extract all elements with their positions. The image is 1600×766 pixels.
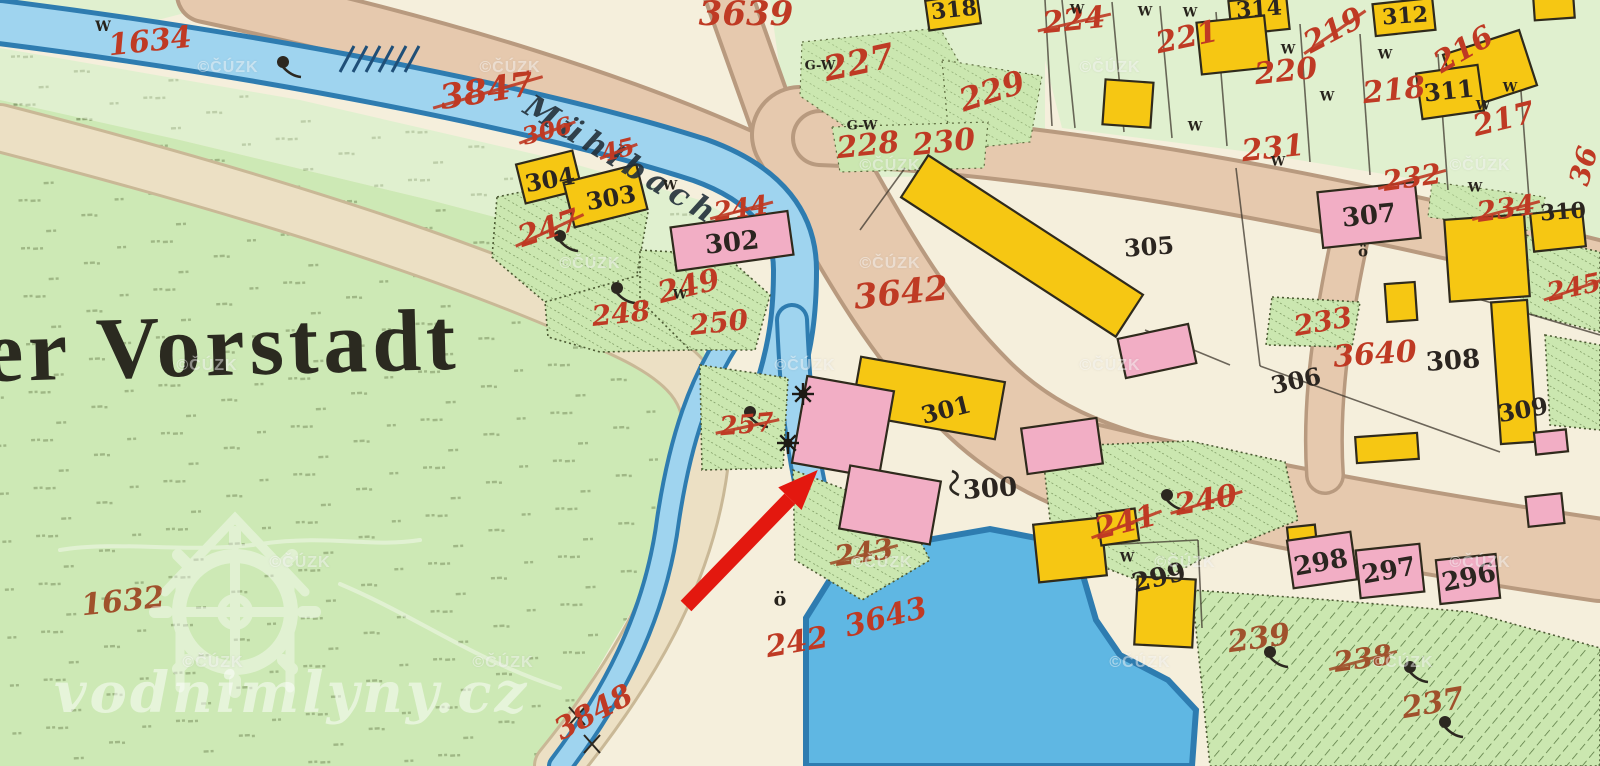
cuzk-copyright-watermark: ©ČÚZK: [859, 255, 920, 273]
cuzk-copyright-watermark: ©ČÚZK: [1449, 554, 1510, 572]
cuzk-copyright-watermark: ©ČÚZK: [859, 157, 920, 175]
cuzk-copyright-watermark: ©ČÚZK: [479, 59, 540, 77]
cuzk-copyright-watermark: ©ČÚZK: [559, 255, 620, 273]
cuzk-copyright-watermark: ©ČÚZK: [1079, 59, 1140, 77]
site-watermark: vodnimlyny.cz: [54, 660, 529, 726]
copyright-watermarks-layer: ©ČÚZK©ČÚZK©ČÚZK©ČÚZK©ČÚZK©ČÚZK©ČÚZK©ČÚZK…: [0, 0, 1600, 766]
cuzk-copyright-watermark: ©ČÚZK: [1372, 654, 1433, 672]
map-viewport[interactable]: 1634384730645247244249248250257364224336…: [0, 0, 1600, 766]
cuzk-copyright-watermark: ©ČÚZK: [269, 554, 330, 572]
cuzk-copyright-watermark: ©ČÚZK: [774, 357, 835, 375]
cuzk-copyright-watermark: ©ČÚZK: [176, 357, 237, 375]
cuzk-copyright-watermark: ©ČÚZK: [1109, 654, 1170, 672]
cuzk-copyright-watermark: ©ČÚZK: [851, 554, 912, 572]
cuzk-copyright-watermark: ©ČÚZK: [1449, 157, 1510, 175]
cuzk-copyright-watermark: ©ČÚZK: [1154, 554, 1215, 572]
cuzk-copyright-watermark: ©ČÚZK: [1079, 357, 1140, 375]
cuzk-copyright-watermark: ©ČÚZK: [197, 59, 258, 77]
